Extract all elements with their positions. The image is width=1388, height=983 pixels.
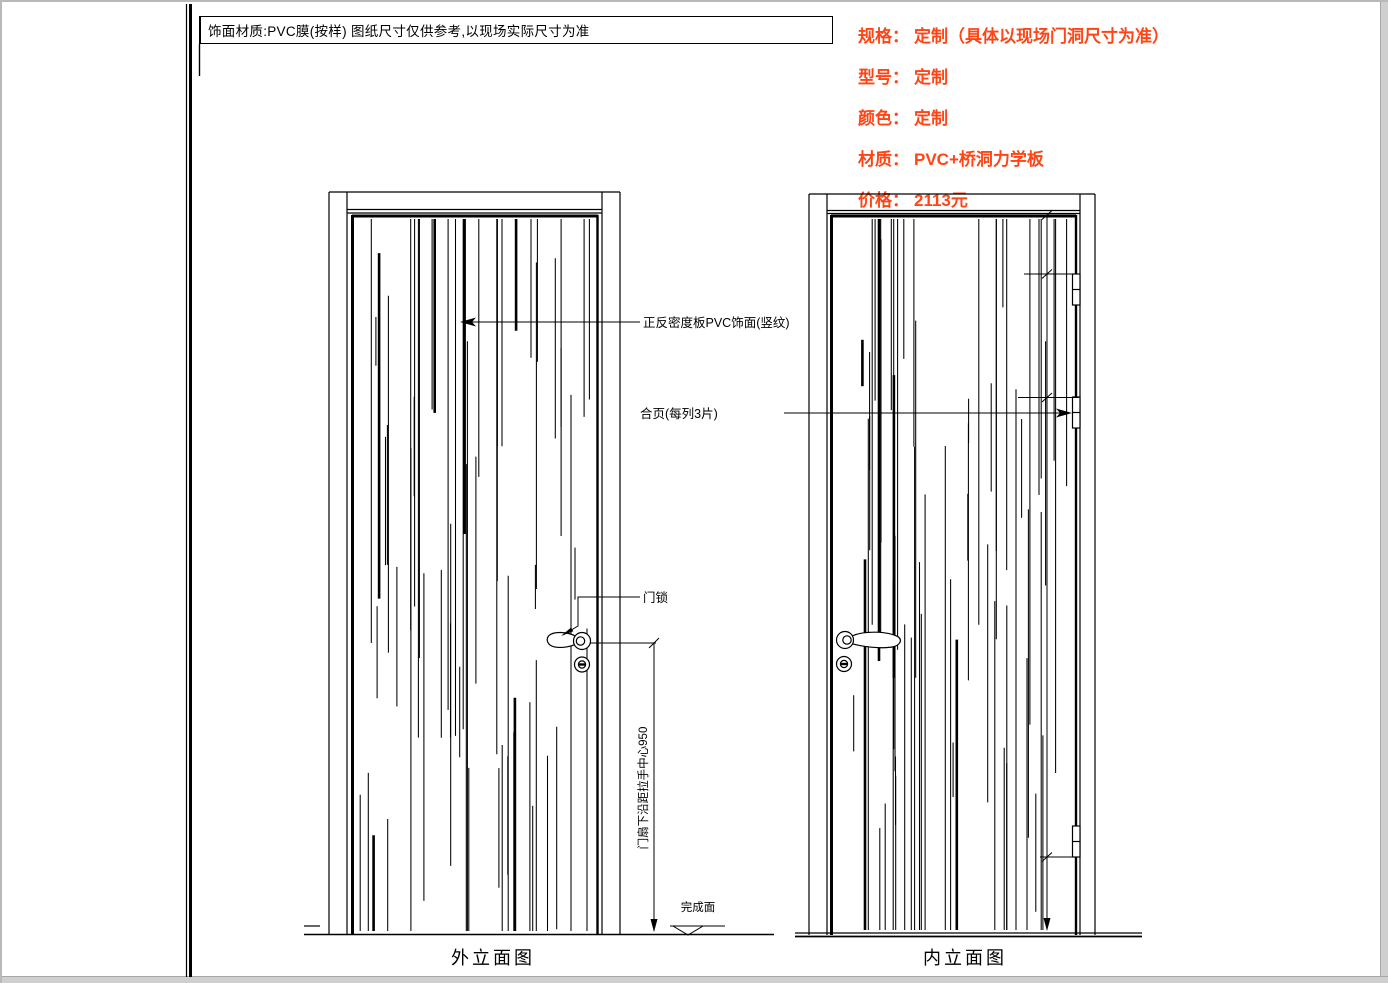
elevation-drawing: 正反密度板PVC饰面(竖纹) 合页(每列3片) 门锁 门扇下沿距拉手中心950 (2, 2, 1388, 983)
lock-cylinder (837, 657, 852, 672)
level-symbol (673, 926, 703, 935)
lock-cylinder (575, 657, 590, 672)
hinge-bottom (1073, 826, 1081, 857)
lever-handle (547, 632, 576, 647)
annotation-handle-dim: 门扇下沿距拉手中心950 (590, 638, 659, 932)
dim-arrow-down (1044, 918, 1051, 931)
right-door-grain (854, 219, 1067, 930)
annotation-lock: 门锁 (561, 590, 669, 636)
right-door (809, 194, 1095, 935)
lever-handle (852, 632, 900, 648)
left-door-frame (329, 192, 620, 934)
drawing-page: 饰面材质:PVC膜(按样) 图纸尺寸仅供参考,以现场实际尺寸为准 规格：定制（具… (0, 0, 1388, 983)
annotation-finish: 正反密度板PVC饰面(竖纹) (460, 315, 790, 330)
lock-label: 门锁 (643, 590, 669, 605)
hinge-label: 合页(每列3片) (640, 406, 718, 421)
hinge-middle (1073, 397, 1081, 428)
sheet-border (187, 4, 200, 977)
left-door-handle (547, 632, 590, 672)
right-door-frame (809, 194, 1095, 935)
dim-arrow-down (651, 919, 658, 932)
annotation-finished-surface: 完成面 (670, 900, 725, 935)
hinge-top (1073, 274, 1081, 305)
finish-label: 正反密度板PVC饰面(竖纹) (643, 315, 790, 330)
interior-view-label: 内立面图 (923, 948, 1007, 968)
exterior-view-label: 外立面图 (451, 948, 535, 968)
finished-surface-label: 完成面 (681, 900, 716, 914)
handle-dim-label: 门扇下沿距拉手中心950 (636, 727, 650, 850)
left-door (329, 192, 620, 934)
